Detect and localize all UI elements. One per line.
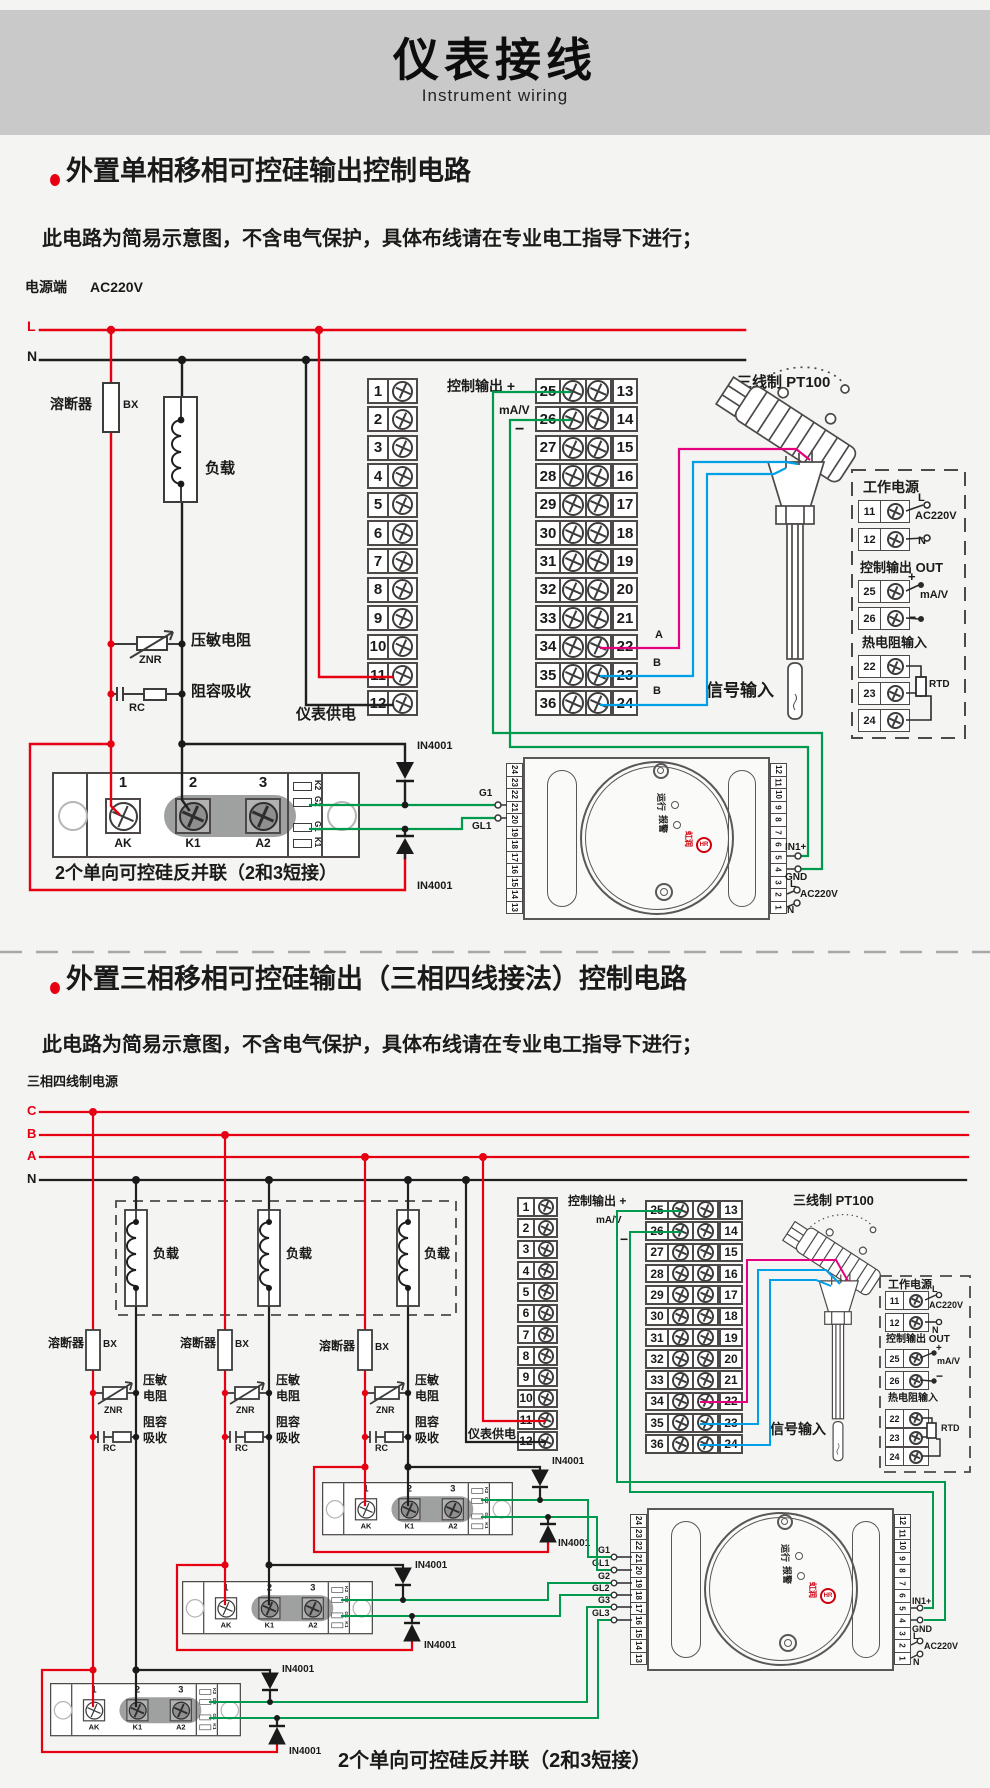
instrument-terminal-column-left: 123456789101112 (517, 1197, 558, 1453)
panel-voltage-label: AC220V (929, 1300, 963, 1310)
screw-icon (538, 1327, 554, 1343)
screw-icon (672, 1372, 689, 1389)
panel-unit: mA/V (937, 1356, 960, 1366)
terminal-number: 13 (719, 1202, 741, 1218)
screw-cell (535, 1242, 556, 1258)
screw-icon (562, 380, 584, 402)
screw-icon (357, 1500, 375, 1518)
terminal-number: 18 (719, 1309, 741, 1325)
gate-label: G1 (344, 1611, 350, 1618)
panel-voltage-label: AC220V (915, 510, 957, 522)
mount-screw-icon (784, 1639, 792, 1647)
terminal-number: 9 (369, 607, 389, 629)
terminal-number: 29 (537, 494, 561, 516)
terminal-number: 11 (369, 664, 389, 686)
signal-wire-b1: B (653, 657, 661, 669)
terminal-number: 11 (519, 1412, 535, 1428)
section2-warning: 此电路为简易示意图，不含电气保护，具体布线请在专业电工指导下进行； (42, 1034, 702, 1056)
terminal-number: 13 (612, 380, 636, 402)
terminal-row: 3523 (645, 1413, 743, 1433)
gate-label: G1 (212, 1713, 218, 1720)
varistor-label: 压敏 (143, 1374, 167, 1387)
gate-label: K2 (313, 780, 322, 790)
gate-label: K1 (313, 837, 322, 847)
terminal-number: 24 (859, 710, 881, 731)
panel-terminal-24: 24 (858, 709, 910, 732)
gate-slot (199, 1689, 211, 1695)
terminal-row: 1 (367, 378, 418, 404)
screw-cell (561, 664, 587, 686)
terminal-number: 21 (719, 1372, 741, 1388)
module-terminal (175, 798, 211, 834)
strip-terminal: 2 (771, 889, 786, 902)
screw-cell (535, 1433, 556, 1449)
terminal-number: 35 (647, 1415, 669, 1431)
terminal-row: 3 (517, 1240, 558, 1260)
screw-cell (669, 1223, 694, 1239)
terminal-number: 34 (647, 1394, 669, 1410)
screw-cell (389, 579, 416, 601)
module-terminal (355, 1498, 377, 1520)
gate-terminal-strip: K2G2G1K1 (468, 1483, 490, 1534)
phase-b-label: B (27, 1127, 36, 1142)
terminal-number: 14 (612, 408, 636, 430)
strip-terminal: 19 (631, 1578, 646, 1591)
module-terminal-number: 2 (258, 1583, 280, 1593)
screw-cell (389, 522, 416, 544)
fuse-code: BX (375, 1342, 389, 1353)
gate-wire-label: GL2 (592, 1583, 610, 1593)
screw-cell (561, 408, 587, 430)
module-terminal-label: K1 (258, 1621, 280, 1629)
gate-label: G1 (484, 1512, 490, 1519)
diode-label: IN4001 (552, 1456, 584, 1467)
run-label: 运行 (779, 1544, 792, 1562)
screw-icon (392, 636, 413, 657)
module-terminal-label: AK (83, 1723, 105, 1731)
strip-terminal: 14 (507, 889, 522, 902)
pt100-label: 三线制 PT100 (793, 1194, 874, 1209)
screw-icon (392, 409, 413, 430)
module-terminal-label: AK (215, 1621, 237, 1629)
screw-cell (389, 437, 416, 459)
terminal-number: 28 (537, 465, 561, 487)
mount-hole-icon (54, 1701, 73, 1720)
module-terminal-label: A2 (442, 1522, 464, 1530)
screw-cell (389, 550, 416, 572)
terminal-row: 3018 (645, 1307, 743, 1327)
gate-terminal-strip: K2G2G1K1 (196, 1684, 218, 1735)
page-header: 仪表接线 Instrument wiring (0, 10, 990, 135)
screw-cell (389, 636, 416, 658)
panel-terminal-26: 26 (858, 607, 910, 630)
strip-terminal: 21 (507, 802, 522, 815)
rc-label: 阻容 (143, 1416, 167, 1429)
fuse-label: 溶断器 (319, 1340, 355, 1353)
screw-cell (389, 494, 416, 516)
strip-terminal: 7 (895, 1578, 910, 1591)
module-terminal-label: A2 (245, 837, 281, 850)
screw-cell (587, 522, 613, 544)
screw-icon (392, 494, 413, 515)
terminal-row: 3018 (535, 520, 638, 546)
gate-slot (331, 1623, 343, 1629)
terminal-number: 5 (519, 1284, 535, 1300)
section1-bullet-icon (50, 174, 60, 186)
screw-icon (538, 1199, 554, 1215)
panel-power-title: 工作电源 (863, 480, 919, 496)
strip-terminal: 16 (631, 1615, 646, 1628)
screw-cell (561, 607, 587, 629)
screw-cell (535, 1284, 556, 1300)
control-output-minus: − (515, 421, 524, 439)
rc-label: 吸收 (415, 1432, 439, 1445)
strip-terminal: 15 (507, 877, 522, 890)
terminal-row: 10 (367, 634, 418, 660)
screw-icon (587, 380, 609, 402)
strip-terminal: 24 (631, 1515, 646, 1528)
s1-junction-dots (107, 326, 409, 833)
screw-cell (669, 1309, 694, 1325)
screw-cell (535, 1199, 556, 1215)
diode-label: IN4001 (289, 1746, 321, 1757)
screw-icon (538, 1348, 554, 1364)
terminal-number: 27 (647, 1245, 669, 1261)
screw-icon (672, 1393, 689, 1410)
rc-label: 阻容吸收 (191, 684, 251, 701)
strip-terminal: 13 (507, 902, 522, 915)
module-terminal (302, 1597, 324, 1619)
module-terminal-number: 2 (126, 1685, 148, 1695)
screw-icon (392, 523, 413, 544)
screw-icon (587, 579, 609, 601)
mount-screw-icon (660, 888, 668, 896)
module-terminal (398, 1498, 420, 1520)
terminal-row: 4 (367, 463, 418, 489)
screw-icon (697, 1223, 714, 1240)
screw-icon (392, 381, 413, 402)
strip-terminal: 8 (771, 814, 786, 827)
screw-icon (538, 1412, 554, 1428)
screw-cell (535, 1369, 556, 1385)
panel-terminal-23: 23 (885, 1428, 929, 1447)
instrument-terminal-column-dual: 2513261427152816291730183119322033213422… (645, 1200, 743, 1456)
screw-cell (389, 465, 416, 487)
strip-terminal: 17 (631, 1603, 646, 1616)
terminal-number: 26 (537, 408, 561, 430)
strip-terminal: 19 (507, 827, 522, 840)
screw-cell (669, 1436, 694, 1452)
screw-cell (694, 1202, 719, 1218)
terminal-row: 3624 (645, 1434, 743, 1454)
terminal-number: 32 (647, 1351, 669, 1367)
control-output-unit: mA/V (596, 1215, 622, 1226)
terminal-number: 6 (369, 522, 389, 544)
module-terminal (215, 1597, 237, 1619)
screw-icon (392, 608, 413, 629)
diode-label: IN4001 (417, 880, 452, 892)
screw-icon (909, 1431, 923, 1445)
terminal-number: 26 (886, 1372, 904, 1389)
scr-module: 1AK2K13A2K2G2G1K1 (52, 772, 360, 858)
screw-cell (587, 408, 613, 430)
terminal-number: 12 (519, 1433, 535, 1449)
terminal-number: 28 (647, 1266, 669, 1282)
instrument-terminal-column-left: 123456789101112 (367, 378, 418, 720)
terminal-row: 3321 (645, 1370, 743, 1390)
line-n-label: N (27, 349, 37, 365)
module-terminal (170, 1699, 192, 1721)
terminal-number: 22 (612, 636, 636, 658)
terminal-number: 14 (719, 1223, 741, 1239)
terminal-row: 2614 (535, 406, 638, 432)
screw-icon (562, 579, 584, 601)
strip-terminal: 18 (507, 839, 522, 852)
mount-hole-icon (221, 1701, 240, 1720)
screw-cell (561, 380, 587, 402)
screw-cell (561, 437, 587, 459)
varistor-label: 电阻 (415, 1390, 439, 1403)
screw-cell (535, 1391, 556, 1407)
screw-icon (887, 712, 904, 729)
strip-terminal: 10 (771, 789, 786, 802)
trigger-right-strip: 121110987654321 (770, 763, 787, 914)
terminal-number: 22 (886, 1410, 904, 1427)
module-endcap (183, 1582, 204, 1633)
module-terminal (258, 1597, 280, 1619)
gate-label: G2 (313, 796, 322, 807)
gate-label: G1 (313, 821, 322, 832)
screw-icon (587, 437, 609, 459)
rc-code: RC (103, 1443, 116, 1453)
screw-icon (672, 1201, 689, 1218)
screw-icon (672, 1350, 689, 1367)
terminal-row: 2614 (645, 1221, 743, 1241)
module-terminal-number: 1 (105, 775, 141, 792)
gate-label: K1 (484, 1522, 490, 1528)
gate-slot (471, 1498, 483, 1504)
terminal-row: 12 (517, 1431, 558, 1451)
terminal-row: 8 (517, 1346, 558, 1366)
screw-cell (587, 494, 613, 516)
panel-l-label: L (918, 492, 925, 504)
module-terminal-label: K1 (126, 1723, 148, 1731)
screw-cell (561, 522, 587, 544)
screw-icon (909, 1374, 923, 1388)
screw-cell (389, 692, 416, 714)
terminal-number: 11 (886, 1292, 904, 1309)
terminal-number: 8 (519, 1348, 535, 1364)
terminal-number: 25 (859, 581, 881, 602)
terminal-number: 2 (519, 1220, 535, 1236)
terminal-row: 2513 (535, 378, 638, 404)
module-endcap (323, 1483, 344, 1534)
meter-supply-label: 仪表供电 (468, 1428, 516, 1441)
section2-bullet-icon (50, 982, 60, 994)
gate-slot (293, 782, 312, 791)
strip-terminal: 15 (631, 1628, 646, 1641)
trigger-left-strip: 242322212019181716151413 (630, 1514, 647, 1665)
power-source-label: 电源端 (25, 280, 67, 296)
page-subtitle: Instrument wiring (0, 86, 990, 106)
gate-slot (331, 1597, 343, 1603)
panel-unit: mA/V (920, 589, 948, 601)
screw-icon (587, 664, 609, 686)
terminal-row: 3422 (645, 1392, 743, 1412)
s1-diodes (396, 762, 414, 854)
screw-icon (697, 1244, 714, 1261)
screw-icon (887, 503, 904, 520)
screw-cell (587, 465, 613, 487)
terminal-row: 11 (367, 662, 418, 688)
panel-terminal-26: 26 (885, 1371, 929, 1390)
signal-wire-a: A (655, 629, 663, 641)
terminal-number: 16 (612, 465, 636, 487)
strip-terminal: 5 (771, 852, 786, 865)
terminal-row: 2513 (645, 1200, 743, 1220)
panel-terminal-24: 24 (885, 1447, 929, 1466)
terminal-number: 25 (537, 380, 561, 402)
screw-cell (535, 1348, 556, 1364)
terminal-number: 22 (719, 1394, 741, 1410)
terminal-number: 29 (647, 1287, 669, 1303)
trigger-in1-label: IN1+ (785, 842, 806, 853)
panel-terminal-12: 12 (885, 1313, 929, 1332)
fuse-label: 溶断器 (180, 1337, 216, 1350)
screw-icon (587, 636, 609, 658)
screw-icon (392, 551, 413, 572)
terminal-number: 10 (369, 636, 389, 658)
terminal-number: 23 (612, 664, 636, 686)
screw-cell (694, 1394, 719, 1410)
screw-cell (561, 550, 587, 572)
screw-icon (562, 692, 584, 714)
trigger-n-label: N (787, 905, 794, 916)
screw-cell (694, 1415, 719, 1431)
terminal-row: 9 (367, 605, 418, 631)
terminal-row: 2917 (645, 1285, 743, 1305)
strip-terminal: 21 (631, 1553, 646, 1566)
strip-terminal: 9 (895, 1553, 910, 1566)
terminal-row: 10 (517, 1389, 558, 1409)
terminal-number: 12 (886, 1314, 904, 1331)
screw-icon (392, 579, 413, 600)
screw-cell (669, 1372, 694, 1388)
strip-terminal: 4 (895, 1615, 910, 1628)
panel-terminal-25: 25 (858, 580, 910, 603)
varistor-code: ZNR (236, 1405, 255, 1415)
mount-hole-icon (493, 1500, 512, 1519)
terminal-row: 3220 (535, 577, 638, 603)
strip-terminal: 17 (507, 852, 522, 865)
screw-icon (697, 1350, 714, 1367)
module-terminal-label: AK (355, 1522, 377, 1530)
brand-label: 虹润 (683, 831, 694, 847)
module-terminal-number: 1 (83, 1685, 105, 1695)
terminal-number: 33 (647, 1372, 669, 1388)
trigger-l-label: L (913, 1631, 919, 1641)
module-terminal (105, 798, 141, 834)
scr-module-a: 1AK2K13A2K2G2G1K1 (322, 1482, 513, 1535)
screw-icon (672, 1265, 689, 1282)
terminal-number: 23 (886, 1429, 904, 1446)
panel-power-title: 工作电源 (888, 1279, 932, 1291)
section1-title: 外置单相移相可控硅输出控制电路 (66, 156, 471, 186)
terminal-number: 34 (537, 636, 561, 658)
run-led-icon (671, 801, 679, 809)
terminal-row: 3523 (535, 662, 638, 688)
screw-icon (672, 1308, 689, 1325)
screw-icon (672, 1414, 689, 1431)
power-voltage-label: AC220V (90, 280, 143, 296)
screw-icon (587, 692, 609, 714)
screw-cell (669, 1330, 694, 1346)
gate-slot (293, 798, 312, 807)
screw-icon (538, 1305, 554, 1321)
strip-terminal: 7 (771, 827, 786, 840)
rc-label: 阻容 (415, 1416, 439, 1429)
screw-cell (669, 1245, 694, 1261)
module-terminal-number: 2 (398, 1484, 420, 1494)
strip-terminal: 2 (895, 1640, 910, 1653)
screw-cell (535, 1263, 556, 1279)
module-endcap (54, 774, 88, 856)
fuse-code: BX (103, 1339, 117, 1350)
load-label: 负载 (153, 1247, 179, 1262)
screw-icon (587, 494, 609, 516)
strip-terminal: 24 (507, 764, 522, 777)
terminal-number: 19 (719, 1330, 741, 1346)
terminal-number: 6 (519, 1306, 535, 1322)
mount-hole-icon (186, 1599, 205, 1618)
gate-slot (199, 1715, 211, 1721)
diode-label: IN4001 (424, 1640, 456, 1651)
module-endcap (323, 774, 358, 856)
mount-screw-icon (781, 1518, 788, 1525)
screw-icon (400, 1500, 418, 1518)
phase-a-label: A (27, 1149, 36, 1164)
gate-slot (199, 1699, 211, 1705)
terminal-number: 30 (647, 1309, 669, 1325)
trigger-n-label: N (913, 1657, 920, 1667)
screw-cell (389, 380, 416, 402)
screw-icon (562, 465, 584, 487)
screw-icon (587, 522, 609, 544)
screw-icon (538, 1369, 554, 1385)
screw-icon (909, 1294, 923, 1308)
terminal-row: 5 (367, 492, 418, 518)
varistor-label: 压敏电阻 (191, 633, 251, 650)
strip-terminal: 1 (771, 902, 786, 915)
gate-label: G2 (484, 1497, 490, 1504)
screw-icon (172, 1701, 190, 1719)
terminal-number: 12 (859, 529, 881, 550)
screw-cell (535, 1412, 556, 1428)
terminal-row: 2917 (535, 492, 638, 518)
panel-n-label: N (918, 535, 926, 547)
terminal-row: 3321 (535, 605, 638, 631)
module-terminal-number: 1 (215, 1583, 237, 1593)
control-output-unit: mA/V (499, 404, 530, 417)
screw-icon (538, 1241, 554, 1257)
screw-icon (697, 1308, 714, 1325)
strip-terminal: 18 (631, 1590, 646, 1603)
panel-terminal-11: 11 (885, 1291, 929, 1310)
strip-terminal: 9 (771, 802, 786, 815)
terminal-row: 2816 (535, 463, 638, 489)
panel-terminal-22: 22 (858, 655, 910, 678)
trigger-in1-label: IN1+ (912, 1596, 931, 1606)
